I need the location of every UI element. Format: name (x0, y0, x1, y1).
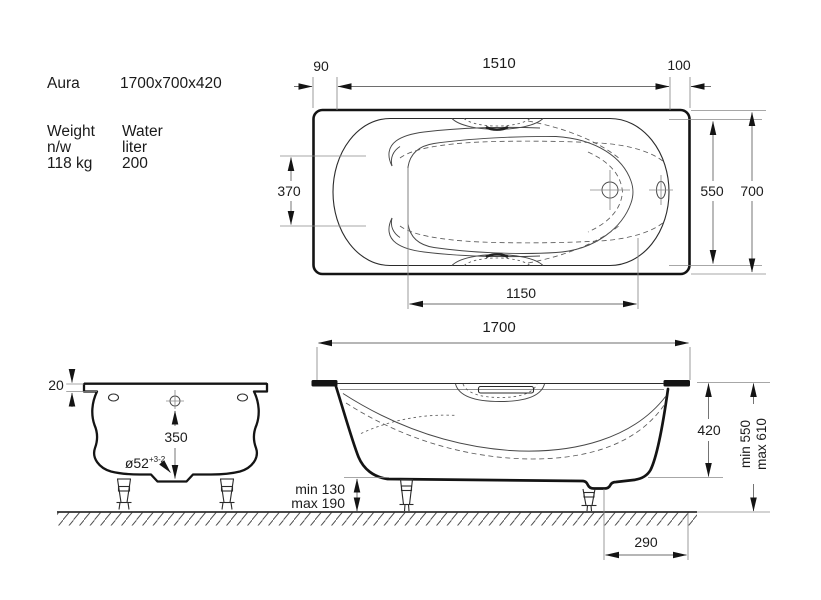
dim-1510: 1510 (480, 57, 517, 71)
tub-inner-rim (333, 119, 669, 266)
top-view (314, 110, 690, 274)
side-grip-recess (456, 384, 545, 402)
drain-axis-symbol (166, 390, 184, 409)
rim-cap-left (312, 380, 338, 387)
dim-1150: 1150 (504, 286, 538, 300)
water-label: Water (122, 124, 163, 140)
section-view (84, 384, 267, 510)
overall-size: 1700x700x420 (120, 76, 222, 92)
dim-700: 700 (738, 184, 765, 198)
dim-drain-diameter: ø52+3-2 (123, 456, 167, 470)
weight-label: Weight (47, 124, 95, 140)
dim-290: 290 (632, 535, 659, 549)
armrest-contours (389, 121, 664, 263)
drain-symbol (590, 170, 630, 210)
weight-sub-label: n/w (47, 140, 71, 156)
water-value: 200 (122, 156, 148, 172)
dim-total-max: max 610 (755, 416, 769, 472)
rim-hole-left (109, 394, 119, 401)
weight-value: 118 kg (47, 156, 92, 172)
side-leg-right (582, 489, 597, 511)
rim-cap-right (664, 380, 691, 387)
side-view (312, 380, 691, 511)
technical-drawing-bathtub: Aura 1700x700x420 Weight n/w 118 kg Wate… (0, 0, 821, 600)
section-leg-left (117, 479, 132, 510)
dim-550: 550 (698, 184, 725, 198)
model-name: Aura (47, 76, 80, 92)
dim-350: 350 (162, 430, 189, 444)
bathing-well-outline (408, 136, 633, 253)
dim-leg-min: min 130 (295, 482, 348, 496)
dim-420: 420 (695, 423, 722, 437)
dim-leg-max: max 190 (291, 496, 348, 510)
dim-100: 100 (665, 58, 692, 72)
dim-20: 20 (46, 378, 66, 392)
section-leg-right (220, 479, 235, 510)
side-interior-contours (343, 394, 666, 460)
ground-hatching (57, 513, 697, 526)
dim-370: 370 (275, 184, 302, 198)
overflow-symbol (649, 175, 673, 205)
dimensions-side-view (344, 383, 770, 561)
rim-hole-right (238, 394, 248, 401)
dim-1700: 1700 (480, 321, 517, 335)
dim-total-min: min 550 (739, 418, 753, 470)
side-leg-left (400, 480, 414, 512)
dim-90: 90 (311, 59, 331, 73)
water-sub-label: liter (122, 140, 147, 156)
ground (57, 512, 697, 526)
